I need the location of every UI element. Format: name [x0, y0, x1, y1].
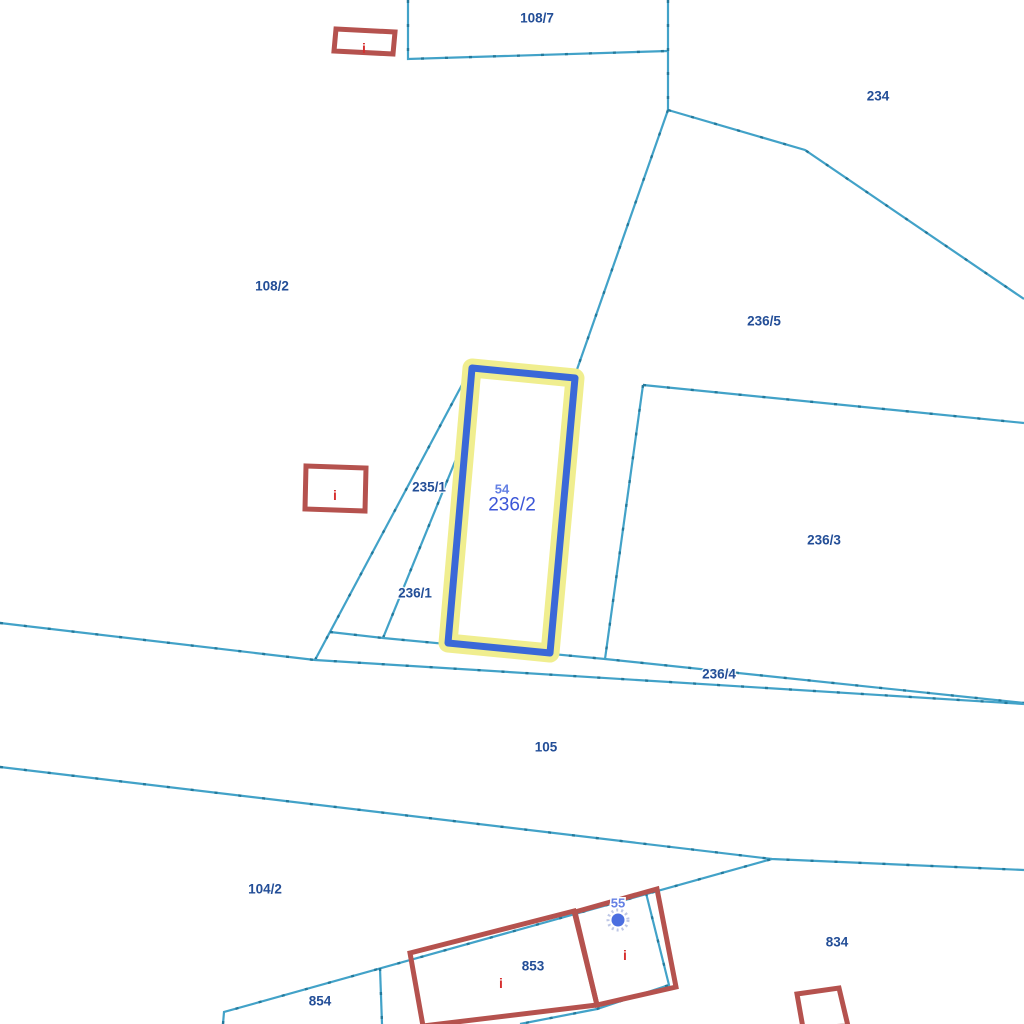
parcel-number-label: 105: [535, 740, 558, 755]
building-info-icon[interactable]: i: [333, 487, 337, 503]
boundary-line-parcel-236-3-north: [643, 385, 1024, 423]
parcel-number-label: 236/1: [398, 586, 432, 601]
building-info-icon[interactable]: i: [362, 40, 366, 56]
parcel-number-label: 108/2: [255, 279, 289, 294]
address-number-label: 55: [611, 896, 625, 911]
map-stage: 108/7234108/2236/5235/1236/1236/3236/410…: [0, 0, 1024, 1024]
parcel-number-label: 236/5: [747, 314, 781, 329]
boundary-line-parcel-236-3-west: [605, 385, 643, 659]
boundary-line-road-south-edge: [0, 767, 1024, 870]
boundary-line-parcel-108-7-west-south: [408, 0, 668, 59]
boundary-ticks-south-block-north-edge: [223, 859, 772, 1024]
cadastral-map[interactable]: 108/7234108/2236/5235/1236/1236/3236/410…: [0, 0, 1024, 1024]
parcel-number-label: 108/7: [520, 11, 554, 26]
boundary-line-south-block-north-edge: [223, 859, 772, 1024]
boundary-ticks-parcel-108-7-west-south: [408, 0, 668, 59]
parcel-number-label: 854: [309, 994, 332, 1009]
boundary-ticks-road-south-edge: [0, 767, 1024, 870]
parcel-number-label: 853: [522, 959, 545, 974]
selected-parcel-label: 236/2: [488, 495, 536, 516]
building-834-outline[interactable]: [797, 988, 848, 1024]
parcel-number-label: 234: [867, 89, 890, 104]
parcel-number-label: 236/4: [702, 667, 736, 682]
address-point-marker[interactable]: [612, 914, 625, 927]
parcel-number-label: 834: [826, 935, 849, 950]
boundary-ticks-parcel-234-southwest: [668, 110, 1024, 299]
boundary-line-parcel-234-southwest: [668, 110, 1024, 299]
building-info-icon[interactable]: i: [499, 975, 503, 991]
building-info-icon[interactable]: i: [623, 947, 627, 963]
building-853-outline[interactable]: [410, 911, 597, 1024]
boundary-line-boundary-854-853: [380, 968, 382, 1024]
parcel-number-label: 104/2: [248, 882, 282, 897]
parcel-number-label: 235/1: [412, 480, 446, 495]
parcel-number-label: 236/3: [807, 533, 841, 548]
point-marker-layer: [608, 910, 628, 930]
